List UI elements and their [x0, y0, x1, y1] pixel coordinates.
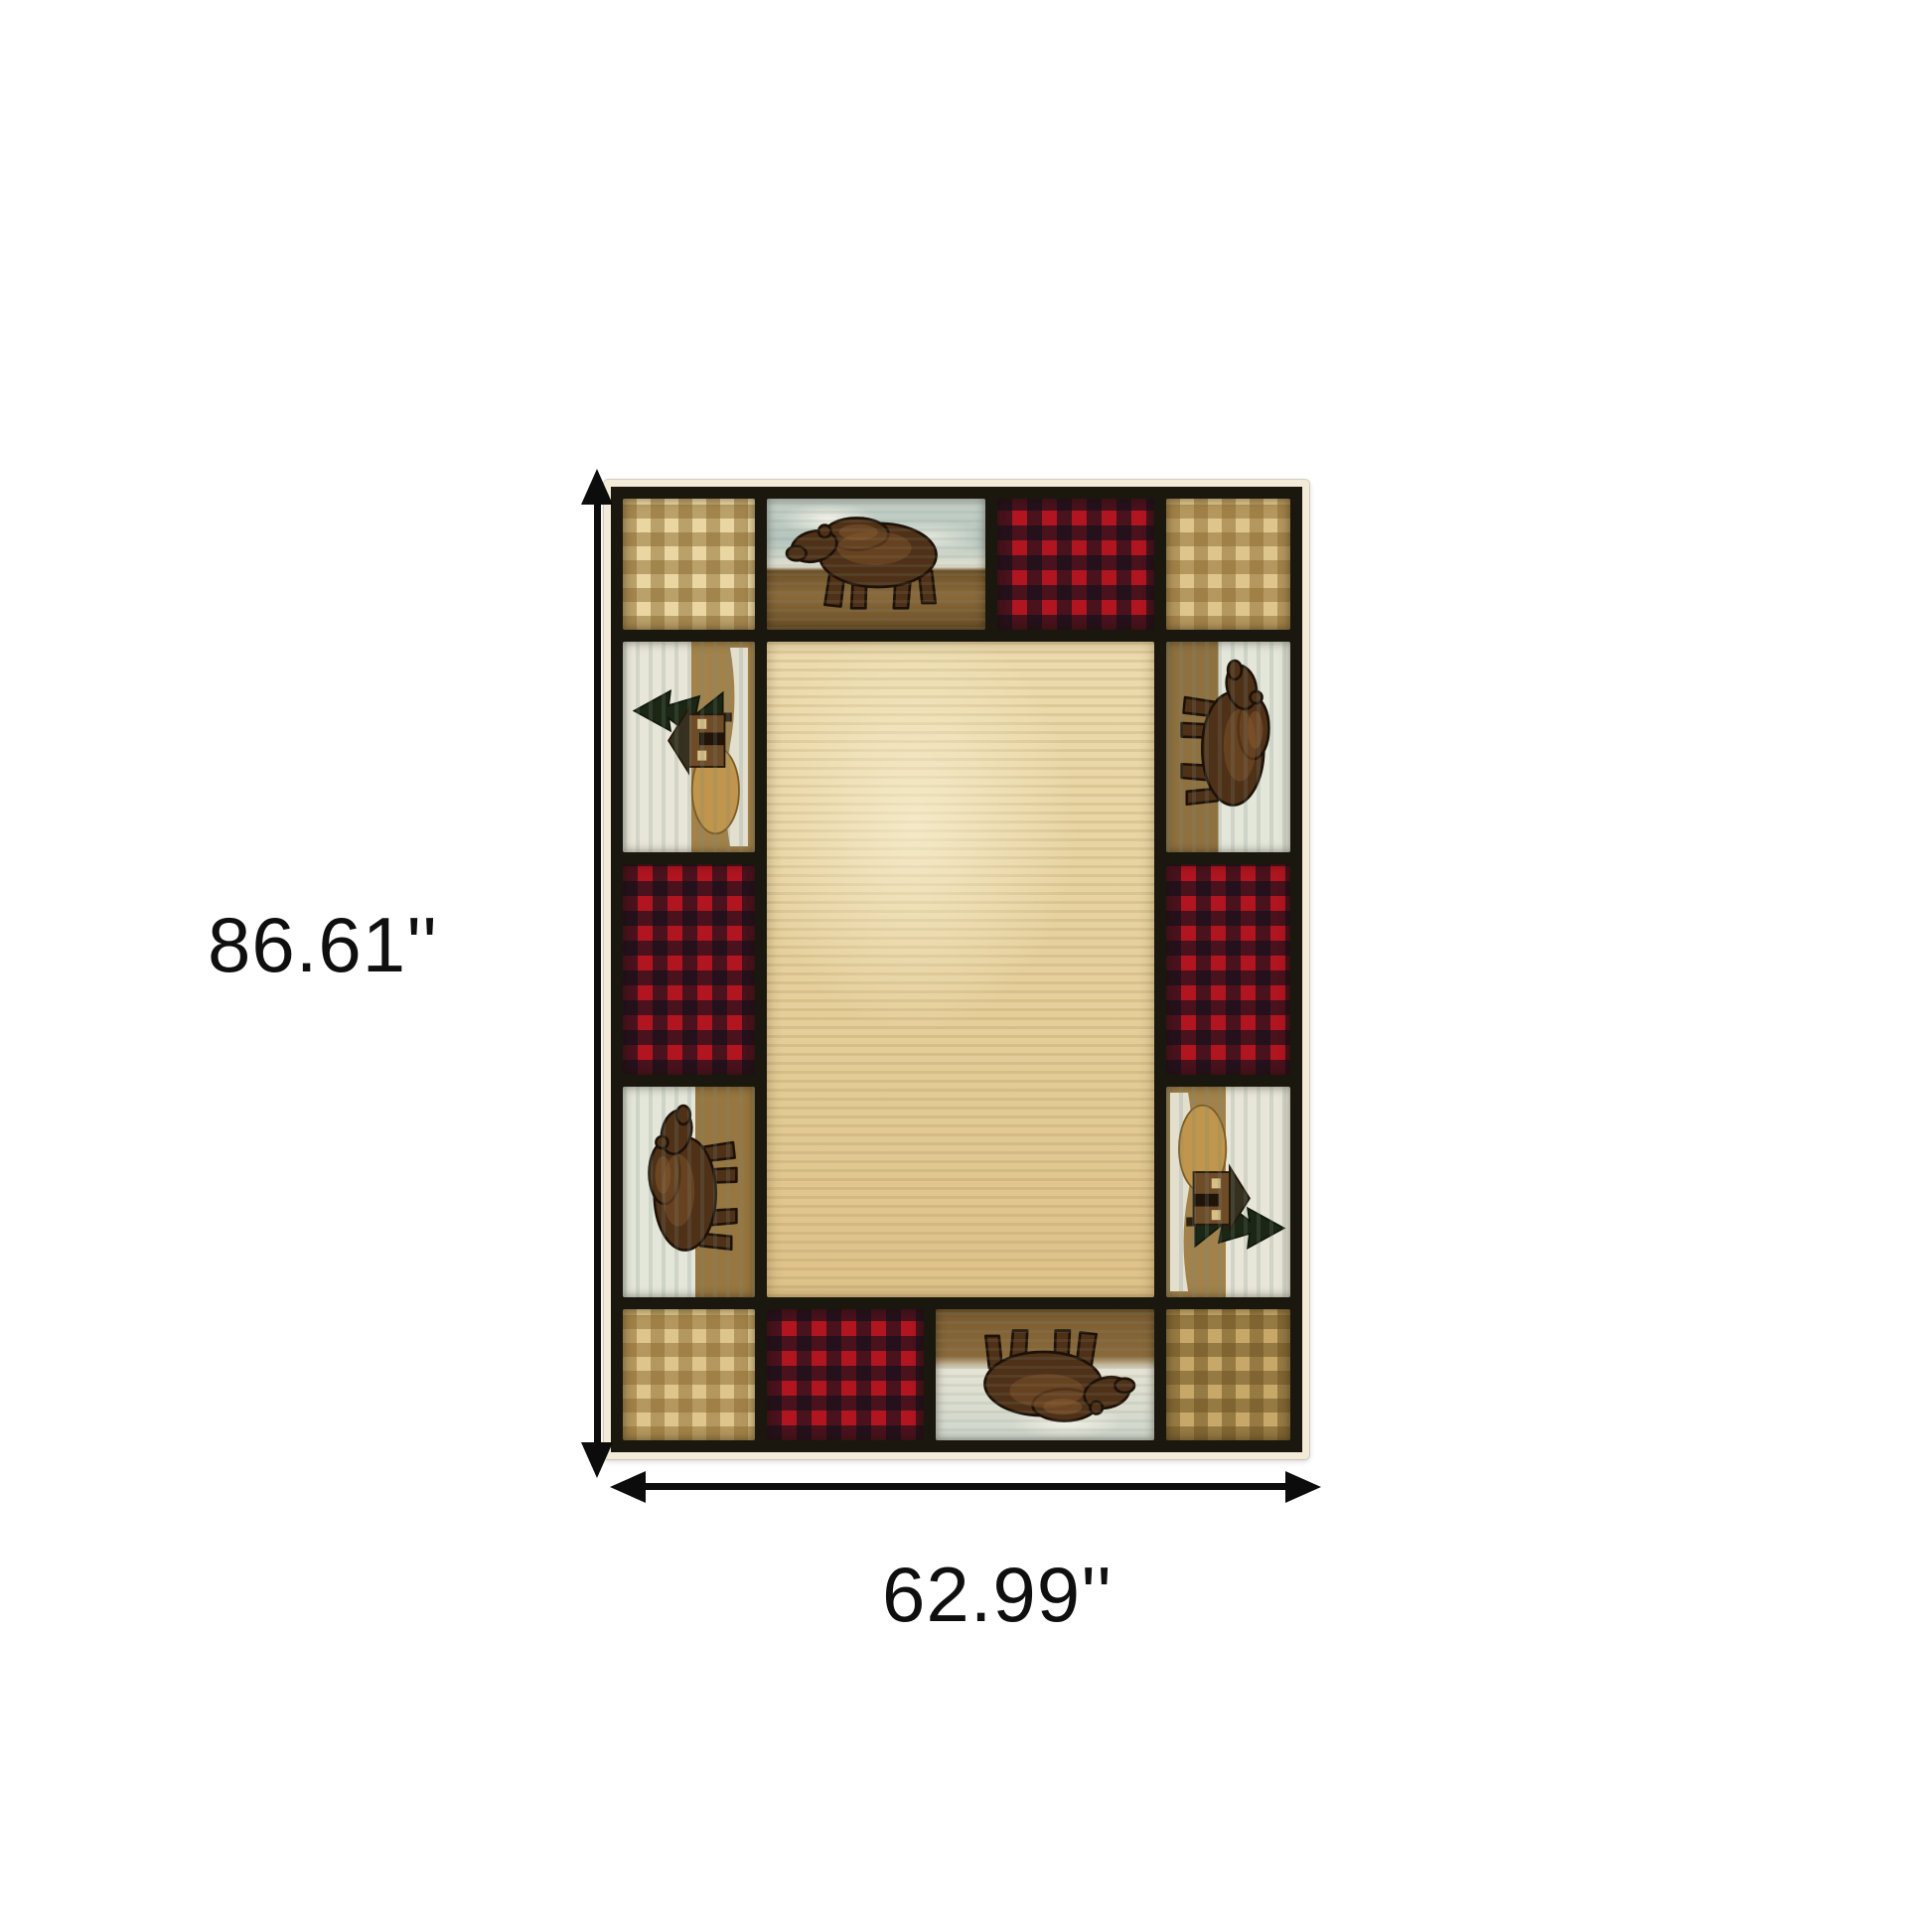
bear-icon — [634, 1098, 745, 1286]
height-dimension-arrow-icon — [580, 467, 614, 1480]
rug-image — [604, 480, 1309, 1459]
cabin-scene-motif — [1166, 1087, 1290, 1297]
gingham-check-patch — [623, 1309, 755, 1440]
cabin-icon — [1169, 1093, 1288, 1291]
buffalo-plaid-patch — [1166, 864, 1290, 1075]
rug-patchwork-border — [611, 487, 1302, 1452]
product-dimension-image: 86.61'' 62.99'' — [0, 0, 1932, 1932]
cabin-icon — [630, 648, 749, 846]
height-dimension-label: 86.61'' — [149, 906, 497, 983]
rug-right-border-column — [1166, 642, 1290, 1297]
gingham-check-patch — [1166, 1309, 1290, 1440]
rug-middle-band — [623, 642, 1290, 1297]
buffalo-plaid-patch — [767, 1309, 924, 1440]
inverted-walking-bear-motif — [936, 1309, 1154, 1440]
walking-bear-motif — [767, 499, 985, 630]
gingham-check-patch — [1166, 499, 1290, 630]
buffalo-plaid-patch — [623, 864, 755, 1075]
buffalo-plaid-patch — [997, 499, 1154, 630]
bear-icon — [1173, 653, 1284, 841]
bear-icon — [948, 1322, 1142, 1437]
width-dimension-label: 62.99'' — [823, 1556, 1171, 1633]
bear-icon — [779, 502, 973, 617]
rug-top-border-row — [623, 499, 1290, 630]
gingham-check-patch — [623, 499, 755, 630]
rug-left-border-column — [623, 642, 755, 1297]
climbing-bear-motif — [623, 1087, 755, 1297]
rug-bottom-border-row — [623, 1309, 1290, 1440]
rug-center-field — [767, 642, 1154, 1297]
climbing-bear-motif — [1166, 642, 1290, 852]
width-dimension-arrow-icon — [608, 1470, 1323, 1504]
cabin-scene-motif — [623, 642, 755, 852]
